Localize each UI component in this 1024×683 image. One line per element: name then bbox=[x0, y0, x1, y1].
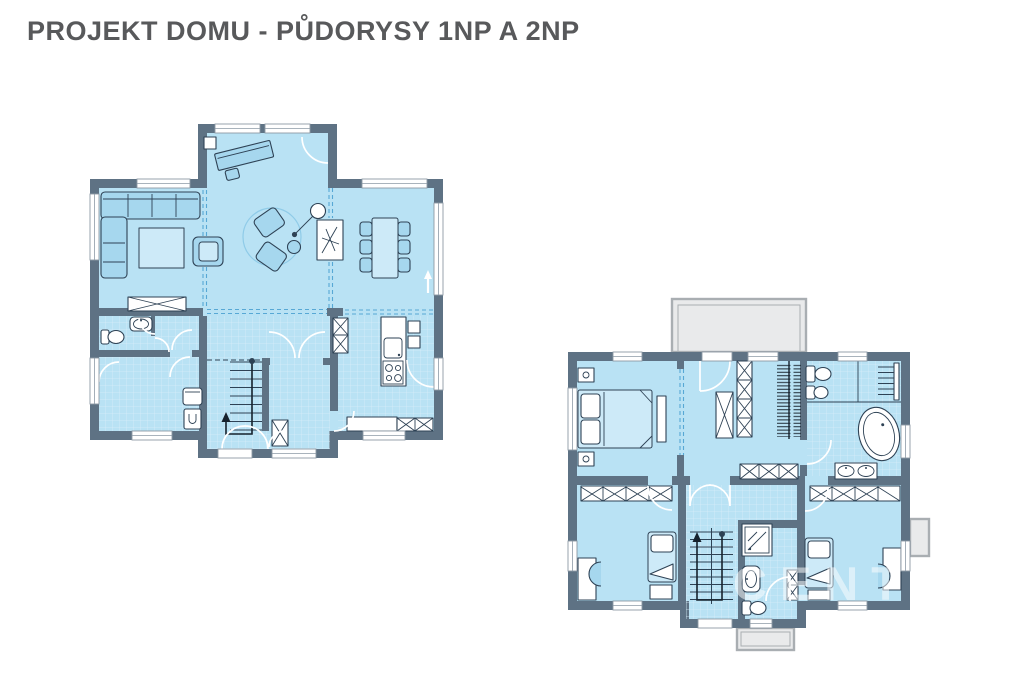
nightstand-2 bbox=[578, 452, 594, 466]
toilet-2np bbox=[806, 366, 831, 382]
fireplace bbox=[317, 220, 343, 260]
kitchen-tall-cabinet bbox=[333, 318, 348, 353]
side-roof-element bbox=[910, 519, 929, 556]
side-table bbox=[288, 241, 301, 254]
wardrobe-column bbox=[737, 361, 752, 437]
kitchen-corner-cabinet bbox=[397, 418, 433, 431]
nightstand-1 bbox=[578, 368, 594, 382]
double-washbasin bbox=[835, 463, 877, 479]
watermark: CENTURY 2 bbox=[733, 556, 1024, 611]
wardrobe-strip-right bbox=[810, 486, 900, 501]
bay-wall-niche bbox=[204, 137, 216, 149]
bidet bbox=[806, 386, 828, 399]
coffee-table bbox=[139, 228, 184, 268]
kitchen-bottom-counter bbox=[347, 417, 397, 431]
wall-cabinet-1 bbox=[408, 321, 420, 333]
entrance-canopy bbox=[737, 628, 794, 650]
toilet-1np bbox=[101, 330, 124, 344]
wardrobe-strip-left bbox=[581, 486, 672, 501]
vestibule-wardrobe bbox=[272, 420, 288, 446]
balcony bbox=[672, 299, 806, 352]
kid-bed-left bbox=[648, 532, 676, 599]
washing-machine bbox=[183, 388, 202, 405]
dresser bbox=[716, 392, 733, 438]
floor-plan-sheet: PROJEKT DOMU - PŮDORYSY 1NP A 2NP bbox=[0, 0, 1024, 683]
laundry-sink bbox=[184, 409, 201, 429]
wall-cabinet-2 bbox=[408, 336, 420, 348]
clothes-rail bbox=[777, 361, 801, 439]
floor-plan-1np bbox=[90, 124, 443, 458]
shower bbox=[742, 524, 772, 556]
armchair bbox=[193, 237, 223, 266]
closet-low-wardrobe bbox=[740, 464, 798, 479]
kitchen-counter bbox=[381, 317, 406, 386]
dining-set bbox=[360, 218, 410, 278]
